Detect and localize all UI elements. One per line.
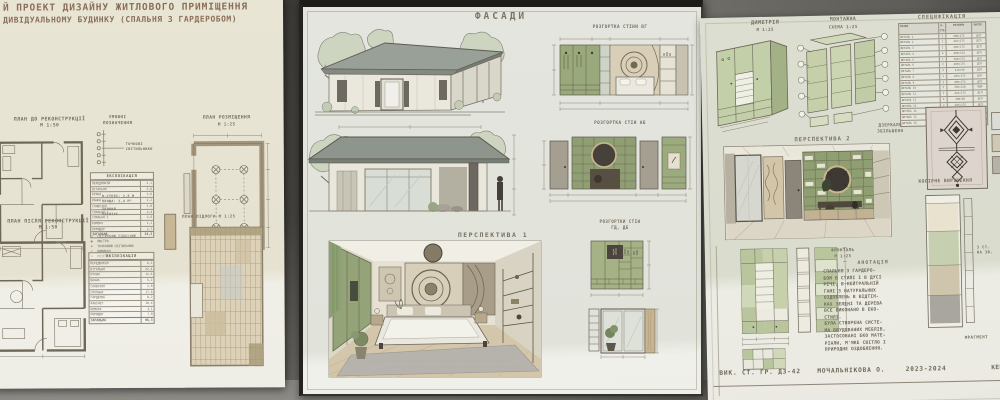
table-row: СПАЛЬНЯ 14,4: [91, 208, 153, 214]
facade-2-drawing: [303, 119, 521, 229]
facades-title: ФАСАДИ: [421, 11, 581, 22]
footer-supervisor: КЕРІВ: [991, 364, 1000, 371]
plan-after-scale: М 1:50: [2, 225, 94, 230]
elevation-4-drawing: [583, 303, 661, 361]
explication-1-rows: ПЕРЕДПОКІЙ2,1ВІТАЛЬНЯ5,8КУХНЯ3,6ВАННА2,2…: [91, 180, 153, 232]
floor-finish-plan-label: ПЛАН ПІДЛОГИ М 1:25: [182, 213, 235, 218]
elevation-3-label-line2: ГД, ДЕ: [565, 225, 675, 230]
table-row: ПЕРЕДПОКІЙ2,1: [91, 180, 153, 186]
table-row: КОРИДОР7,8: [90, 311, 154, 317]
lights-plan-scale: М 1:25: [188, 121, 266, 126]
warm-note-line1: ТЕПЛИЙ: [102, 207, 116, 211]
floor-plan-after-drawing: [0, 234, 89, 361]
mirror-label-line2: ЗБІЛЬШЕНО: [854, 128, 926, 135]
table-row: ПЕРЕДПОКІЙ6,2: [89, 260, 153, 266]
legend-note-line1: ТОЧКОВІ: [126, 142, 143, 146]
table-row: СПАЛЬНЯ17,6: [90, 288, 154, 294]
interior-perspective-2-drawing: [723, 142, 893, 241]
frontal-label-line2: М 1:25: [817, 253, 869, 259]
explication-2-rows: ПЕРЕДПОКІЙ6,2ВІТАЛЬНЯ22,4КУХНЯ12,6ВАННА5…: [89, 260, 153, 317]
explication-table-2: ЕКСПЛІКАЦІЯ ПЕРЕДПОКІЙ6,2ВІТАЛЬНЯ22,4КУХ…: [88, 252, 154, 324]
elevation-2-label: РОЗГОРТКА СТІН АБ: [555, 121, 685, 126]
plan-before-label: ПЛАН ДО РЕКОНСТРУКЦІЇ: [4, 116, 96, 122]
table-row: КУХНЯ12,6: [89, 271, 153, 277]
table-row: КАБІНЕТ10,4: [90, 300, 154, 306]
material-swatch-3: [992, 156, 1000, 174]
table-row: ГАРДЕРОБ8,2: [90, 294, 154, 300]
specification-title: СПЕЦИФІКАЦІЯ: [896, 13, 988, 21]
dimetric-wardrobe-drawing: [708, 32, 796, 138]
color-solution-drawing: [924, 193, 977, 332]
corner-note-line2: НА ЗВ.: [977, 249, 1000, 255]
project-title-line1: Й ПРОЕКТ ДИЗАЙНУ ЖИТЛОВОГО ПРИМІЩЕННЯ: [3, 1, 248, 13]
material-swatch-2: [991, 134, 1000, 152]
legend-note-line2: СВІТИЛЬНИКИ: [126, 147, 153, 151]
assembly-scheme-drawing: [796, 28, 890, 130]
annotation-text: СПАЛЬНЯ З ГАРДЕРО-БОМ В СТИЛІ І В ДУСІРЕ…: [823, 268, 931, 355]
footer-rule: [714, 380, 1000, 387]
elevation-2-drawing: [540, 129, 695, 207]
fragment-label: ФРАГМЕНТ: [965, 334, 1000, 340]
elevation-1-drawing: [548, 33, 698, 117]
annotation-title: АНОТАЦІЯ: [823, 260, 923, 267]
lights-plan-label: ПЛАН РОЗМІЩЕННЯ: [188, 115, 266, 120]
table-row: КОРИДОР2,7: [91, 226, 153, 232]
project-title-line2: ДИВІДУАЛЬНОМУ БУДИНКУ (СПАЛЬНЯ З ГАРДЕРО…: [3, 14, 237, 24]
floor-finish-plan-drawing: [188, 225, 265, 369]
spec-header-row: НАЗВА К-СТЬ РОЗМІРИ МАТЕР.: [899, 22, 985, 33]
annotation-line: ПРИРОДНЕ ОЗДОБЛЕННЯ.: [825, 345, 931, 354]
table-row: САНВУЗОЛ2,8: [89, 283, 153, 289]
legend-title-line1: УМОВНІ: [90, 114, 146, 119]
ceiling-note-line2: ПЛОЩА: 2,4 М²: [102, 199, 132, 203]
table-row: СПАЛЬНЯ 22,6: [91, 214, 153, 220]
footer-author: МОЧАЛЬНІКОВА О.: [817, 366, 885, 374]
interior-perspective-1-drawing: [327, 239, 545, 381]
elevation-3-label-line1: РОЗГОРТКИ СТІН: [565, 219, 675, 224]
warm-note-line2: ПЛІНТУС: [102, 212, 118, 216]
board-left: Й ПРОЕКТ ДИЗАЙНУ ЖИТЛОВОГО ПРИМІЩЕННЯ ДИ…: [0, 0, 285, 389]
table-row: КОМОРА3,1: [90, 306, 154, 312]
perspective-1-label: ПЕРСПЕКТИВА 1: [403, 231, 583, 239]
plan-after-label: ПЛАН ПІСЛЯ РЕКОНСТРУКЦІЇ: [2, 218, 94, 224]
elevation-1-label: РОЗГОРТКА СТІНИ ВГ: [555, 25, 685, 30]
footer-years: 2023-2024: [906, 365, 947, 373]
montage-label-line1: МОНТАЖНА: [806, 16, 880, 23]
table-row: ВАННА5,2: [89, 277, 153, 283]
footer-group: ВИК. СТ. ГР. ДЗ-42: [719, 368, 801, 377]
board-middle: ФАСАДИ: [299, 0, 703, 396]
explication-2-total-row: ЗАГАЛЬНА 96,3: [90, 317, 154, 323]
legend-title-line2: ПОЗНАЧЕННЯ: [90, 120, 146, 125]
explication-table-1: ЕКСПЛІКАЦІЯ ПЕРЕДПОКІЙ2,1ВІТАЛЬНЯ5,8КУХН…: [90, 172, 154, 238]
facade-1-drawing: [311, 23, 509, 119]
table-row: ВІТАЛЬНЯ22,4: [89, 266, 153, 272]
warm-panel-drawing: [164, 214, 176, 250]
elevation-3-drawing: [583, 235, 659, 301]
table-row: ВІТАЛЬНЯ5,8: [91, 186, 153, 192]
board-right: ДИМЕТРІЯ М 1:25 МОНТАЖНА СХЕМА 1:25: [700, 12, 1000, 400]
material-swatch-1: [991, 112, 1000, 130]
table-row: САНВУЗОЛ1,8: [91, 203, 153, 209]
table-row: КОМОРА1,1: [91, 220, 153, 226]
plan-before-scale: М 1:50: [4, 123, 96, 128]
